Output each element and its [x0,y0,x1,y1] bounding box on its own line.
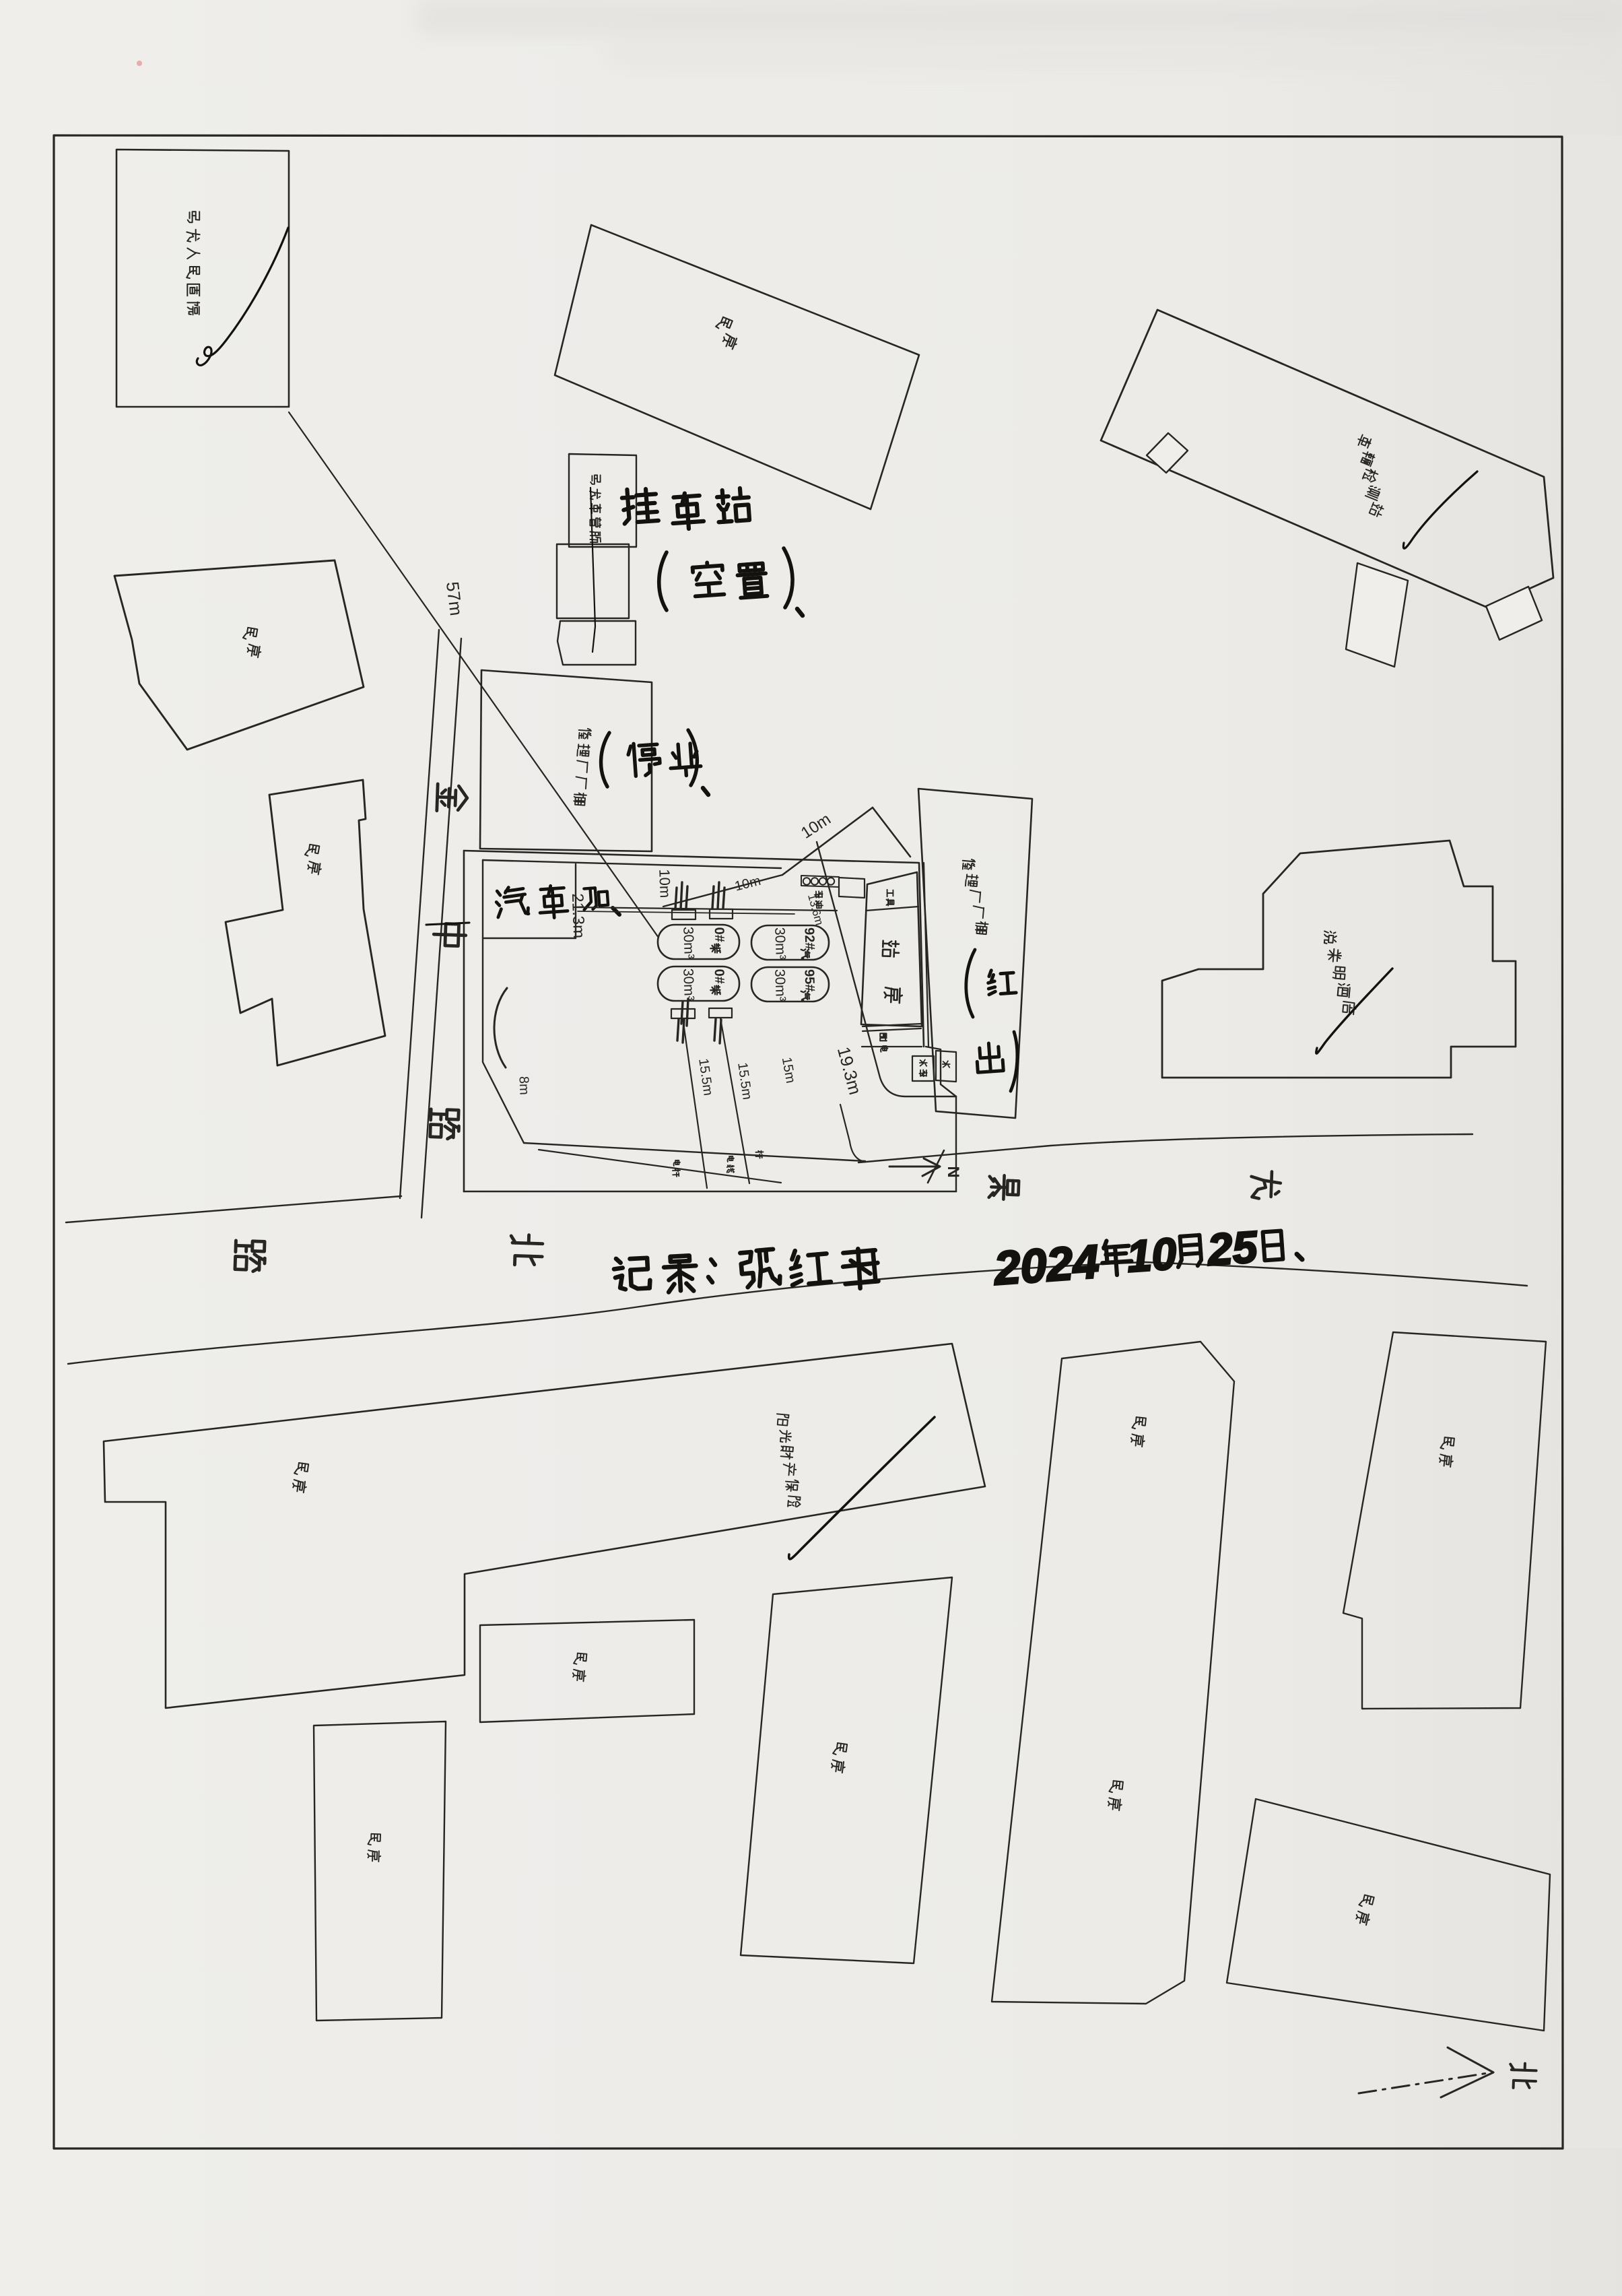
svg-text:0#: 0# [712,969,727,984]
svg-text:92#: 92# [801,927,817,950]
svg-text:2024: 2024 [991,1235,1101,1295]
svg-text:30m³: 30m³ [772,927,788,960]
svg-text:21.3m: 21.3m [568,893,588,939]
svg-text:57m: 57m [442,581,467,617]
svg-text:10: 10 [1125,1228,1178,1282]
svg-text:0#: 0# [712,927,727,942]
svg-text:95#: 95# [801,969,817,992]
svg-text:8m: 8m [516,1076,532,1096]
svg-text:30m³: 30m³ [680,926,697,959]
svg-text:25: 25 [1205,1221,1260,1274]
svg-text:30m³: 30m³ [680,968,697,1001]
svg-text:10m: 10m [656,869,673,898]
svg-text:N: N [944,1166,962,1177]
svg-text:30m³: 30m³ [772,969,788,1002]
